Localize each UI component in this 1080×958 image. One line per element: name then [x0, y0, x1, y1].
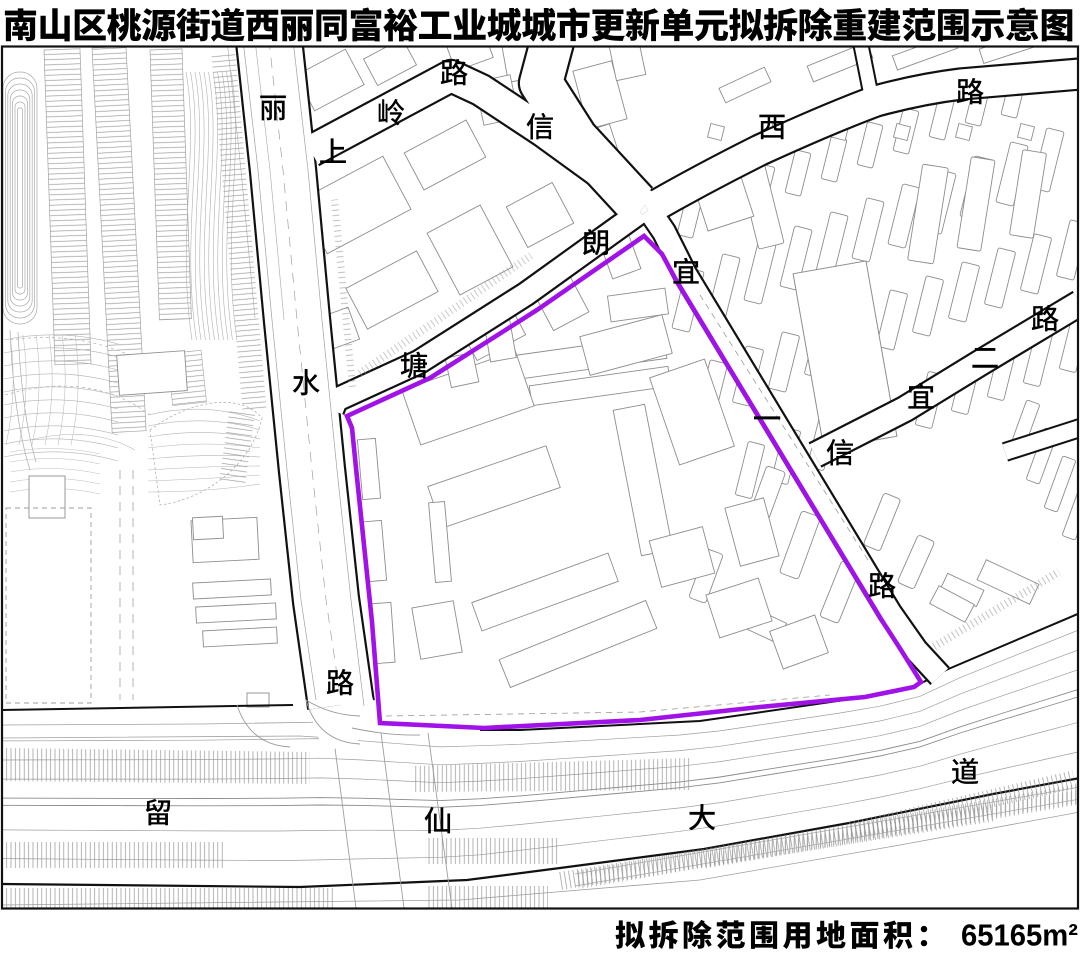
svg-text:65165m²: 65165m²: [961, 918, 1078, 953]
